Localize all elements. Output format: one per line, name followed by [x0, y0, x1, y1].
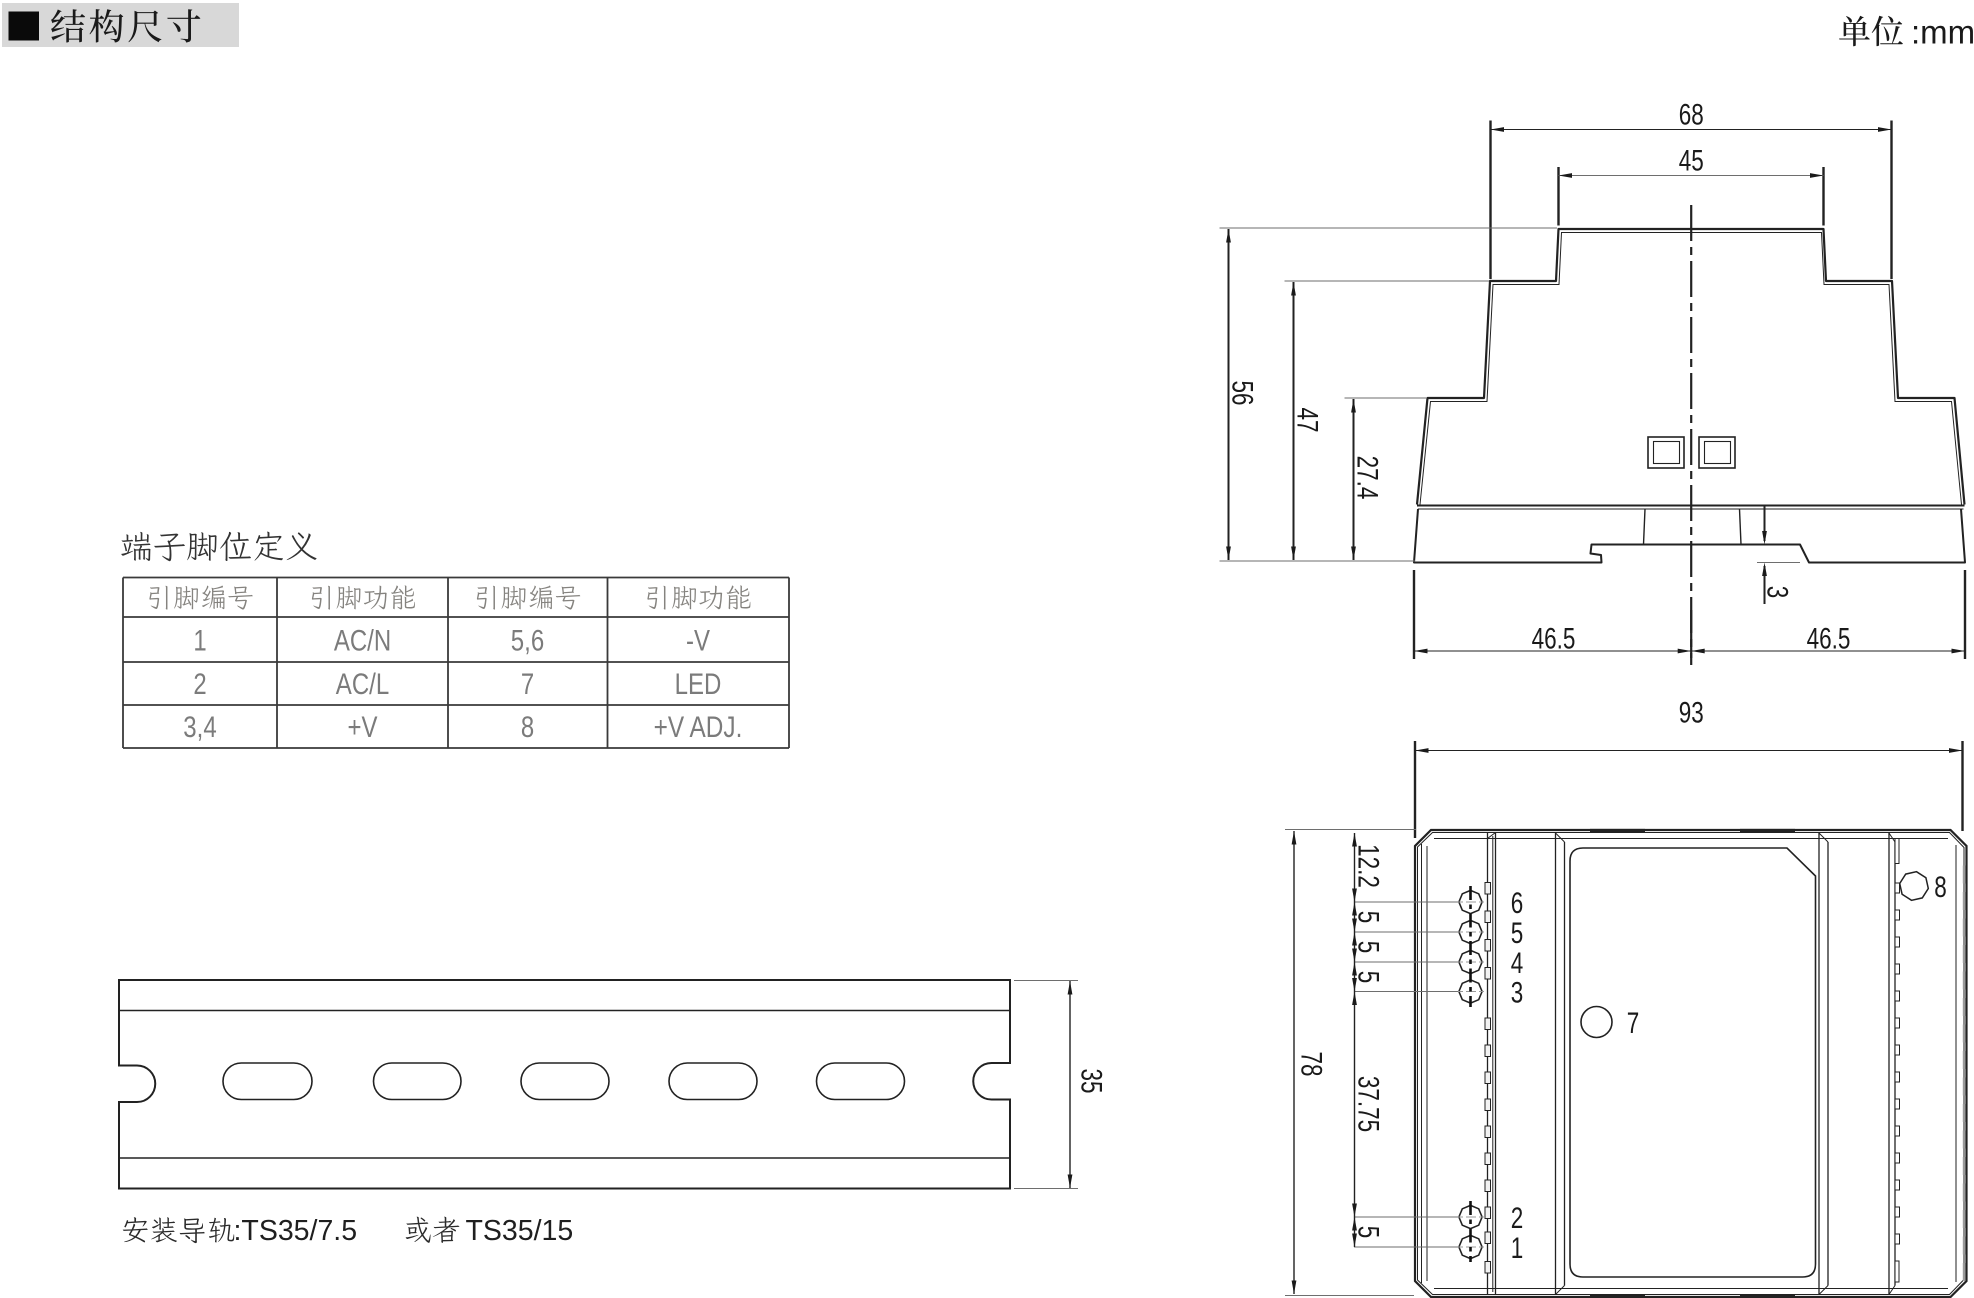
svg-text:56: 56 [1226, 381, 1259, 406]
svg-text:1: 1 [193, 625, 206, 658]
svg-text:5,6: 5,6 [511, 625, 544, 658]
svg-text:+V ADJ.: +V ADJ. [654, 711, 743, 744]
svg-text:5: 5 [1352, 941, 1385, 954]
svg-text::mm: :mm [1911, 14, 1974, 51]
svg-text:2: 2 [1511, 1202, 1524, 1235]
svg-text:68: 68 [1679, 99, 1704, 132]
svg-text:47: 47 [1291, 408, 1324, 433]
svg-text:3: 3 [1511, 977, 1524, 1010]
svg-text:5: 5 [1352, 911, 1385, 924]
svg-text:8: 8 [521, 711, 534, 744]
svg-text:93: 93 [1679, 697, 1704, 730]
svg-text:2: 2 [193, 668, 206, 701]
svg-text:3,4: 3,4 [183, 711, 216, 744]
svg-text:37.75: 37.75 [1352, 1076, 1385, 1132]
svg-text:+V: +V [348, 711, 378, 744]
svg-text:27.4: 27.4 [1351, 456, 1384, 500]
svg-text:AC/N: AC/N [334, 625, 391, 658]
svg-text:46.5: 46.5 [1807, 623, 1851, 656]
svg-text:8: 8 [1934, 871, 1947, 904]
svg-text:6: 6 [1511, 887, 1524, 920]
svg-text:3: 3 [1761, 586, 1794, 599]
svg-text:4: 4 [1511, 947, 1524, 980]
svg-text:7: 7 [1627, 1007, 1640, 1040]
svg-text:1: 1 [1511, 1232, 1524, 1265]
svg-text:7: 7 [521, 668, 534, 701]
svg-text:78: 78 [1295, 1052, 1328, 1077]
svg-text::TS35/7.5: :TS35/7.5 [234, 1215, 358, 1247]
svg-text:12.2: 12.2 [1352, 844, 1385, 888]
svg-text:35: 35 [1075, 1069, 1108, 1094]
svg-text:-V: -V [686, 625, 710, 658]
svg-text:5: 5 [1511, 917, 1524, 950]
svg-text:5: 5 [1352, 1226, 1385, 1239]
svg-text:5: 5 [1352, 971, 1385, 984]
svg-text:TS35/15: TS35/15 [466, 1215, 574, 1247]
svg-text:AC/L: AC/L [336, 668, 389, 701]
svg-text:46.5: 46.5 [1532, 623, 1576, 656]
svg-text:LED: LED [675, 668, 722, 701]
svg-text:45: 45 [1679, 145, 1704, 178]
